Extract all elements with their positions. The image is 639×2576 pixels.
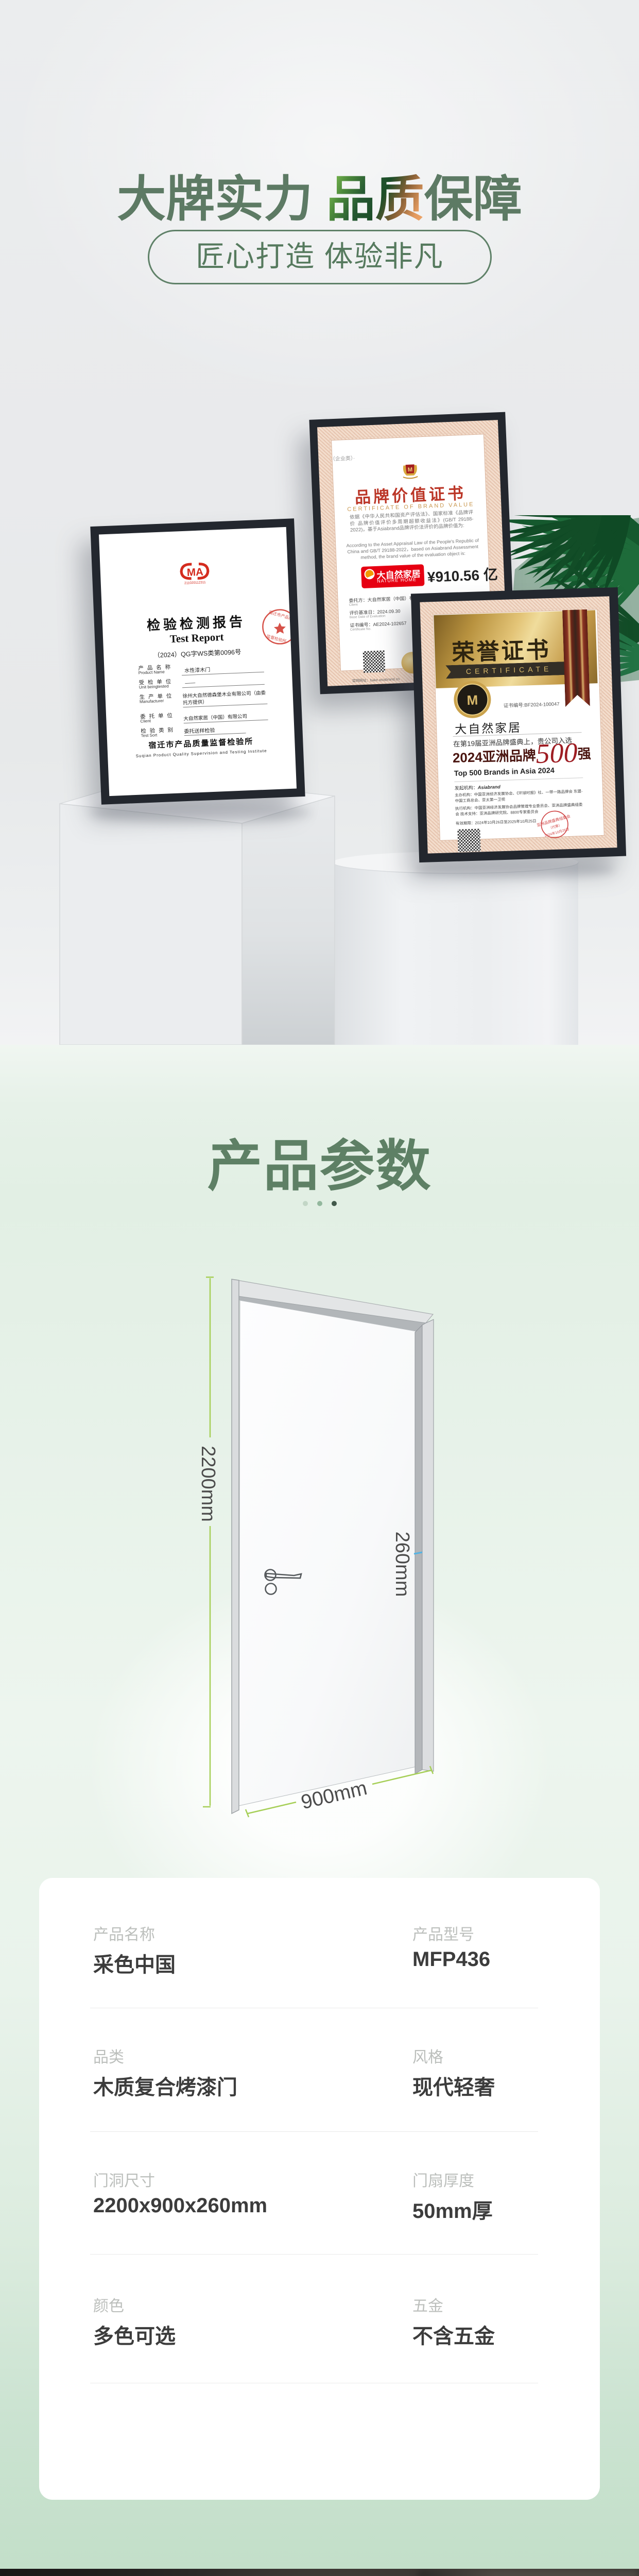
svg-text:2200mm: 2200mm (197, 1446, 219, 1522)
svg-text:M: M (408, 467, 413, 473)
svg-text:211020112311: 211020112311 (184, 581, 206, 585)
svg-text:M: M (467, 692, 478, 708)
svg-text:监督检验所: 监督检验所 (266, 633, 287, 643)
svg-text:MA: MA (186, 566, 203, 579)
svg-text:宿迁市产品质量: 宿迁市产品质量 (268, 609, 297, 622)
svg-text:260mm: 260mm (391, 1532, 413, 1597)
